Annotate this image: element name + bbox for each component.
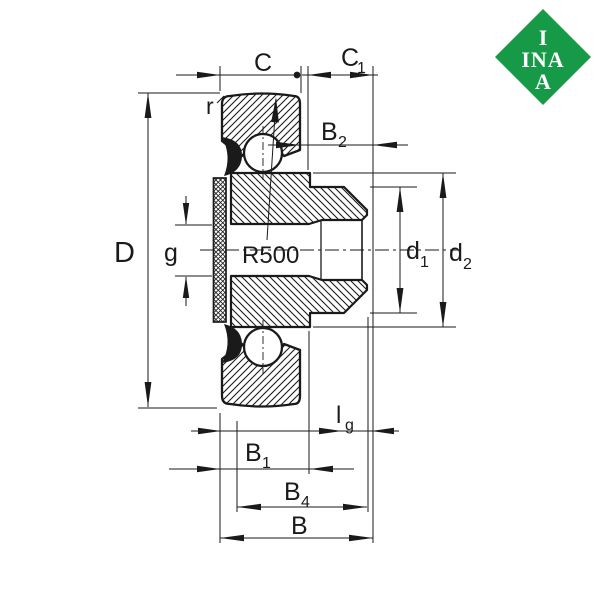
label-C: C [254, 49, 272, 77]
inner-ring-hub-section-bottom [231, 276, 367, 327]
label-g: g [164, 239, 178, 267]
label-B1-sub: 1 [262, 455, 271, 472]
label-d1-sub: 1 [420, 254, 429, 271]
label-B4: B [284, 478, 301, 506]
label-D: D [114, 237, 135, 269]
dim-C1 [302, 72, 378, 78]
technical-drawing: C C 1 r B 2 D g R500 d 1 d 2 l g B 1 B 4… [0, 0, 600, 600]
label-C1-sub: 1 [357, 60, 366, 77]
label-B: B [291, 512, 308, 540]
label-B2: B [321, 118, 338, 146]
dim-g [183, 196, 189, 306]
ina-logo: I INA A [495, 9, 591, 105]
ina-logo-row3: A [535, 69, 551, 94]
label-R500: R500 [242, 242, 299, 269]
label-B1: B [245, 439, 262, 467]
inner-ring-hub-section-top [231, 173, 367, 224]
label-d2: d [449, 239, 463, 267]
label-B2-sub: 2 [338, 134, 347, 151]
label-d2-sub: 2 [463, 256, 472, 273]
label-B4-sub: 4 [301, 494, 310, 511]
label-r: r [206, 93, 214, 119]
label-lg-sub: g [345, 417, 354, 434]
dim-C [176, 72, 300, 79]
label-lg: l [336, 402, 341, 429]
dim-D [145, 93, 152, 407]
label-d1: d [406, 237, 420, 265]
drawing-page: C C 1 r B 2 D g R500 d 1 d 2 l g B 1 B 4… [0, 0, 600, 600]
